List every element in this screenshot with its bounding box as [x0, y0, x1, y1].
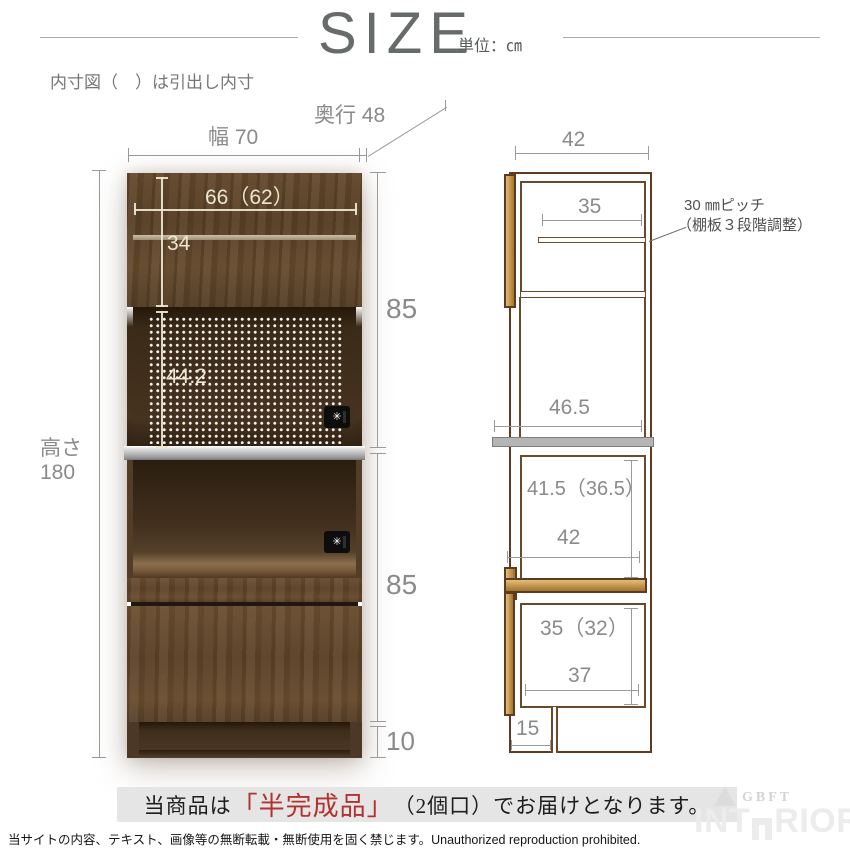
front-rail — [127, 578, 362, 602]
power-outlet-upper: ✳ — [324, 406, 350, 428]
side-fixed-shelf — [520, 291, 646, 298]
banner-prefix: 当商品は — [144, 790, 232, 820]
side-depth-line — [515, 153, 648, 154]
base-10-line — [377, 726, 378, 757]
side-niche-wall-left — [519, 297, 521, 437]
wordmark-left: INT — [694, 802, 750, 841]
interior-wordmark: INTRIOR — [694, 802, 850, 841]
size-diagram-page: SIZE 単位：㎝ 内寸図（ ）は引出し内寸 奥行 48 幅 70 高さ 180 — [0, 0, 850, 850]
copyright-notice: 当サイトの内容、テキスト、画像等の無断転載・無断使用を固く禁じます。Unauth… — [8, 829, 640, 848]
delivery-banner: 当商品は「半完成品」（2個口）でお届けとなります。 — [117, 787, 737, 822]
depth-leader-tick — [445, 100, 446, 111]
side-back-panel-upper — [504, 174, 516, 308]
page-title: SIZE — [318, 2, 475, 66]
width-dim-tick-right-2 — [366, 148, 367, 162]
width-dim-line — [128, 155, 366, 156]
side-depth-tick-left — [515, 146, 516, 160]
counter-depth-tick-right — [641, 420, 642, 432]
drawer-height-tick-bottom — [624, 704, 638, 705]
upper-85-line — [377, 172, 378, 448]
upper-85-tick-bottom — [370, 447, 386, 448]
side-back-panel-lower — [504, 592, 515, 716]
inner-top-width-tick-left — [134, 203, 136, 215]
toe-kick-depth-line — [511, 745, 551, 746]
shelf-pitch-note-line1: 30 ㎜ピッチ — [684, 198, 765, 215]
base-10-tick-top — [370, 726, 386, 727]
header-rule-left — [40, 37, 298, 38]
drawer-depth-tick-left — [525, 684, 526, 696]
niche-height-tick-top — [156, 311, 168, 313]
upper-85-tick-top — [370, 172, 386, 173]
height-label-value: 180 — [40, 461, 75, 484]
drawer-inner-height-label: 35（32） — [540, 617, 629, 640]
lower-niche — [127, 460, 362, 578]
side-depth-label: 42 — [562, 128, 585, 151]
door-height-line — [161, 177, 163, 307]
side-shelf-tick-right — [641, 214, 642, 226]
lower-section-height-label: 85 — [386, 570, 417, 601]
height-dim-line — [99, 170, 100, 758]
lower-niche-interior — [133, 460, 356, 578]
height-dim-tick-bottom — [92, 757, 106, 758]
stainless-counter — [124, 446, 365, 460]
niche-height-label: 44.2 — [166, 365, 207, 388]
slide-out-shelf — [504, 578, 647, 593]
counter-depth-line — [494, 426, 641, 427]
gbft-interior-watermark: GBFT INTRIOR — [692, 784, 850, 850]
inner-dimension-note: 内寸図（ ）は引出し内寸 — [50, 74, 254, 93]
toe-kick-depth-label: 15 — [516, 717, 539, 740]
width-label: 幅 70 — [208, 126, 258, 149]
drawer-front — [127, 606, 362, 722]
door-height-tick-bottom — [156, 305, 168, 307]
counter-depth-label: 46.5 — [549, 396, 590, 419]
drawer-height-tick-top — [624, 608, 638, 609]
upper-section-height-label: 85 — [386, 294, 417, 325]
mid-inner-height-line — [631, 460, 632, 577]
toe-kick-shadow — [139, 750, 350, 758]
niche-height-line — [161, 311, 163, 448]
mid-inner-depth-line — [507, 557, 640, 558]
side-shelf-depth-label: 35 — [578, 195, 601, 218]
side-shelf-dim-line — [542, 220, 642, 221]
banner-count: （2個口） — [394, 790, 494, 820]
drawer-inner-depth-label: 37 — [568, 664, 591, 687]
banner-suffix: でお届けとなります。 — [493, 790, 710, 820]
height-dim-tick-top — [92, 170, 106, 171]
lower-85-line — [377, 453, 378, 722]
side-counter-slab — [492, 437, 654, 447]
depth-label: 奥行 48 — [314, 104, 385, 127]
drawer-depth-tick-right — [638, 684, 639, 696]
base-height-label: 10 — [386, 727, 415, 756]
mid-inner-depth-label: 42 — [557, 526, 580, 549]
niche-height-tick-bottom — [156, 446, 168, 448]
power-outlet-lower: ✳ — [324, 531, 350, 553]
base-section — [127, 722, 362, 758]
counter-depth-tick-left — [494, 420, 495, 432]
inner-top-width-line — [134, 209, 357, 211]
width-dim-tick-right-1 — [359, 148, 360, 162]
toe-kick-tick-left — [511, 740, 512, 750]
wordmark-right: RIOR — [774, 802, 850, 841]
toe-kick-tick-right — [550, 740, 551, 750]
side-niche-wall-right — [644, 297, 646, 437]
mid-depth-tick-right — [639, 551, 640, 563]
lower-85-tick-top — [370, 453, 386, 454]
side-shelf-tick-left — [542, 214, 543, 226]
width-dim-tick-left — [128, 148, 129, 162]
shelf-pitch-note-line2: （棚板３段階調整） — [677, 218, 812, 235]
inner-top-width-label: 66（62） — [205, 186, 294, 209]
mid-inner-height-label: 41.5（36.5） — [527, 478, 645, 500]
unit-label: 単位：㎝ — [458, 38, 522, 56]
side-mid-cabinet-box — [520, 455, 646, 580]
base-10-tick-bottom — [370, 757, 386, 758]
side-toe-kick-board — [551, 707, 558, 753]
door-height-tick-top — [156, 177, 168, 179]
mid-depth-tick-left — [507, 551, 508, 563]
mid-height-tick-top — [624, 460, 638, 461]
stylized-a-icon — [752, 818, 772, 840]
drawer-inner-depth-line — [525, 690, 639, 691]
banner-highlight: 「半完成品」 — [232, 786, 394, 823]
door-height-label: 34 — [167, 232, 190, 255]
side-adjustable-shelf — [538, 237, 646, 243]
header-rule-right — [563, 37, 820, 38]
inner-top-width-tick-right — [355, 203, 357, 215]
toe-kick-recess — [139, 722, 350, 750]
side-depth-tick-right — [648, 146, 649, 160]
height-label-text: 高さ — [40, 437, 82, 460]
lower-85-tick-bottom — [370, 721, 386, 722]
